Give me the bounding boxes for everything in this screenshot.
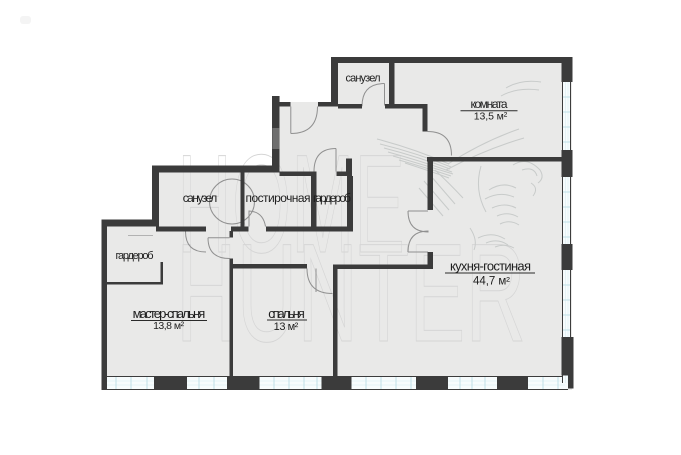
svg-text:мастер-спальня: мастер-спальня (133, 306, 206, 321)
svg-text:постирочная: постирочная (246, 191, 311, 205)
svg-text:13,5 м²: 13,5 м² (474, 110, 508, 122)
svg-text:44,7 м²: 44,7 м² (473, 275, 510, 287)
svg-text:санузел: санузел (346, 72, 381, 84)
svg-text:санузел: санузел (183, 191, 218, 205)
svg-text:гардероб: гардероб (313, 191, 351, 205)
svg-text:13 м²: 13 м² (274, 321, 299, 333)
svg-text:комната: комната (471, 97, 508, 111)
svg-text:гардероб: гардероб (116, 250, 154, 262)
svg-text:кухня-гостиная: кухня-гостиная (450, 258, 531, 273)
svg-text:13,8 м²: 13,8 м² (153, 320, 185, 332)
svg-text:спальня: спальня (268, 306, 305, 321)
